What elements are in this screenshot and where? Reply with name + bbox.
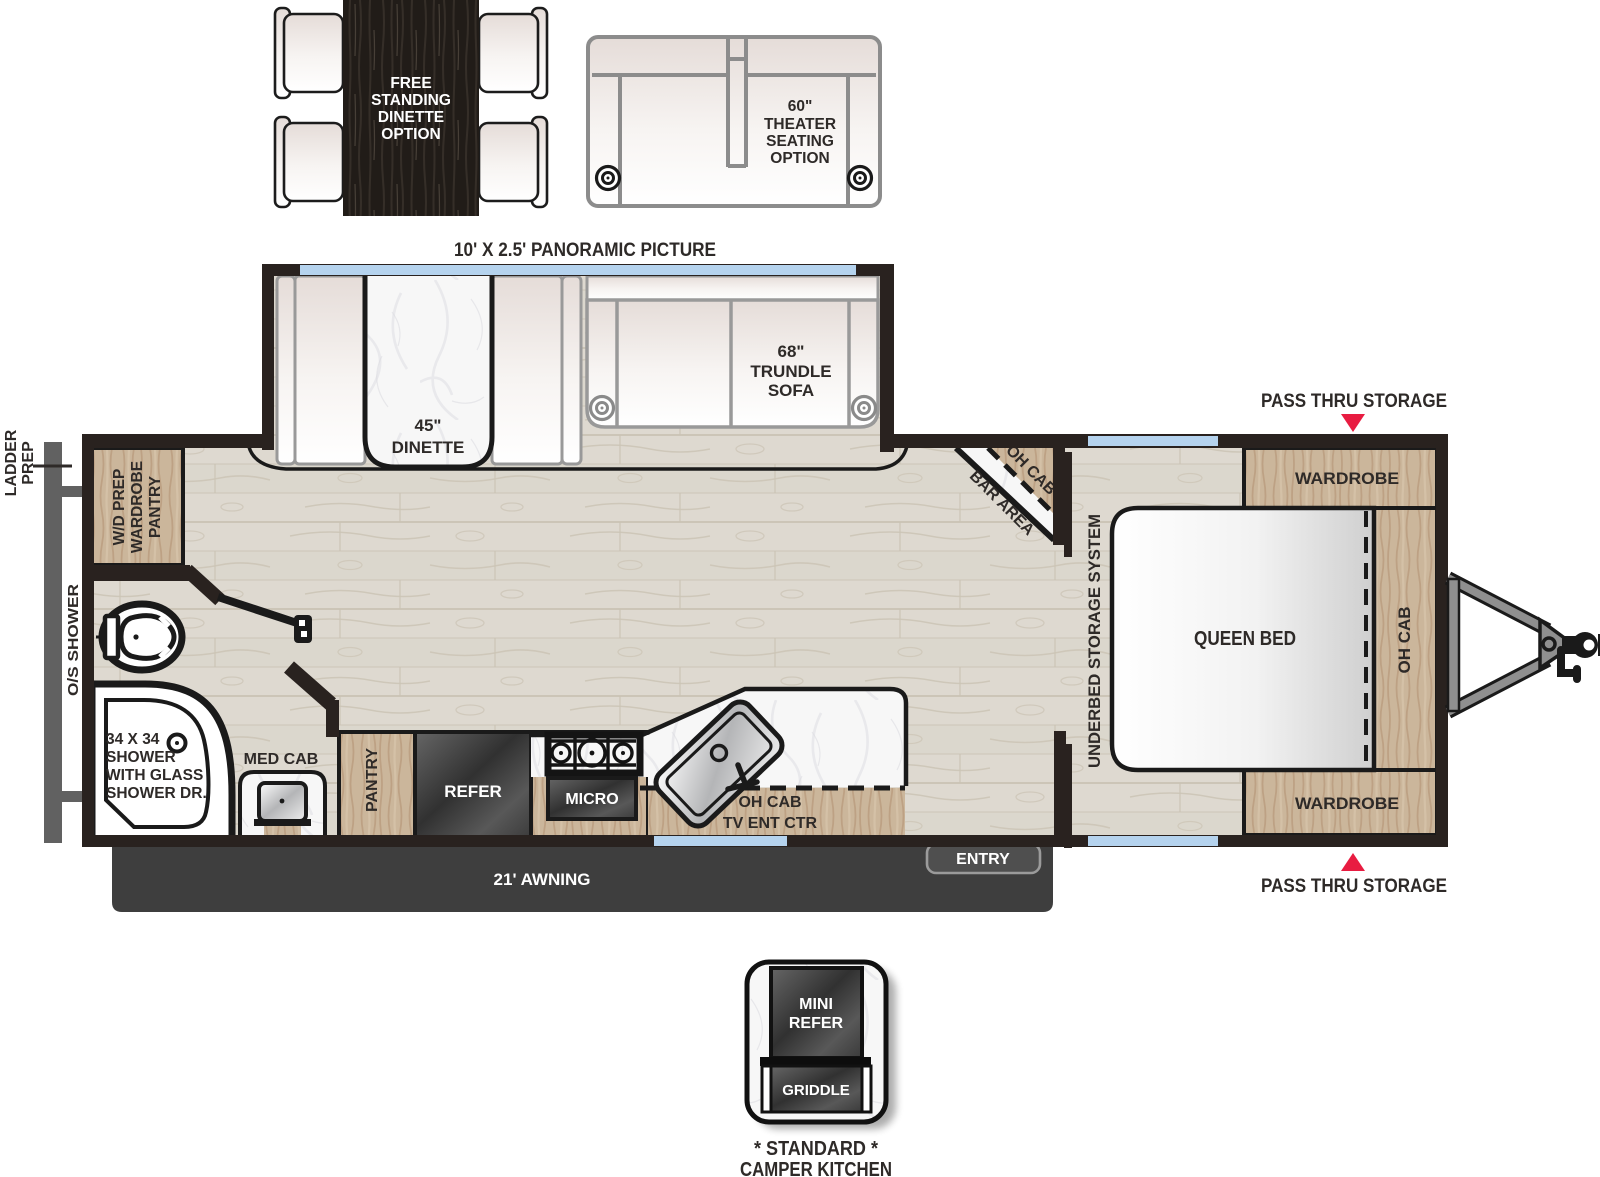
svg-text:PASS THRU STORAGE: PASS THRU STORAGE [1261, 876, 1447, 897]
svg-text:SOFA: SOFA [768, 381, 814, 400]
svg-text:68": 68" [778, 342, 805, 361]
svg-text:SHOWER: SHOWER [106, 749, 176, 766]
svg-text:WITH GLASS: WITH GLASS [106, 767, 203, 784]
svg-text:SEATING: SEATING [766, 133, 834, 150]
svg-text:OH CAB: OH CAB [1395, 606, 1414, 673]
svg-text:TRUNDLE: TRUNDLE [750, 362, 831, 381]
svg-text:GRIDDLE: GRIDDLE [782, 1082, 850, 1099]
svg-text:MINI: MINI [799, 996, 833, 1013]
svg-text:QUEEN BED: QUEEN BED [1194, 628, 1296, 650]
svg-text:45": 45" [415, 416, 442, 435]
svg-text:O/S SHOWER: O/S SHOWER [65, 584, 82, 696]
svg-text:DINETTE: DINETTE [378, 109, 444, 126]
svg-text:WARDROBE: WARDROBE [129, 461, 146, 553]
svg-text:PANTRY: PANTRY [364, 748, 381, 812]
svg-text:OH CAB: OH CAB [738, 794, 801, 811]
svg-text:SHOWER DR.: SHOWER DR. [106, 785, 207, 802]
svg-text:THEATER: THEATER [764, 116, 836, 133]
svg-text:FREE: FREE [390, 75, 431, 92]
svg-text:WARDROBE: WARDROBE [1295, 469, 1399, 488]
svg-text:UNDERBED STORAGE SYSTEM: UNDERBED STORAGE SYSTEM [1085, 514, 1104, 768]
svg-text:10' X 2.5' PANORAMIC PICTURE: 10' X 2.5' PANORAMIC PICTURE [454, 239, 716, 261]
svg-text:PANTRY: PANTRY [147, 475, 164, 538]
svg-text:WARDROBE: WARDROBE [1295, 794, 1399, 813]
svg-text:34 X 34: 34 X 34 [106, 731, 160, 748]
svg-text:LADDER: LADDER [3, 429, 20, 496]
svg-text:MICRO: MICRO [565, 791, 618, 808]
svg-text:TV ENT CTR: TV ENT CTR [723, 815, 818, 832]
svg-text:PASS THRU STORAGE: PASS THRU STORAGE [1261, 391, 1447, 412]
svg-text:60": 60" [788, 98, 813, 115]
svg-text:OPTION: OPTION [770, 150, 829, 167]
svg-text:OPTION: OPTION [381, 126, 440, 143]
svg-text:REFER: REFER [444, 782, 502, 801]
svg-text:W/D PREP: W/D PREP [111, 469, 128, 546]
svg-text:CAMPER KITCHEN: CAMPER KITCHEN [740, 1159, 892, 1177]
svg-text:REFER: REFER [789, 1015, 844, 1032]
svg-text:DINETTE: DINETTE [392, 438, 465, 457]
svg-text:MED CAB: MED CAB [244, 751, 319, 768]
svg-text:* STANDARD *: * STANDARD * [754, 1138, 878, 1160]
svg-text:ENTRY: ENTRY [956, 851, 1010, 868]
svg-text:STANDING: STANDING [371, 92, 451, 109]
svg-text:PREP: PREP [20, 441, 37, 485]
svg-text:21' AWNING: 21' AWNING [494, 870, 591, 889]
